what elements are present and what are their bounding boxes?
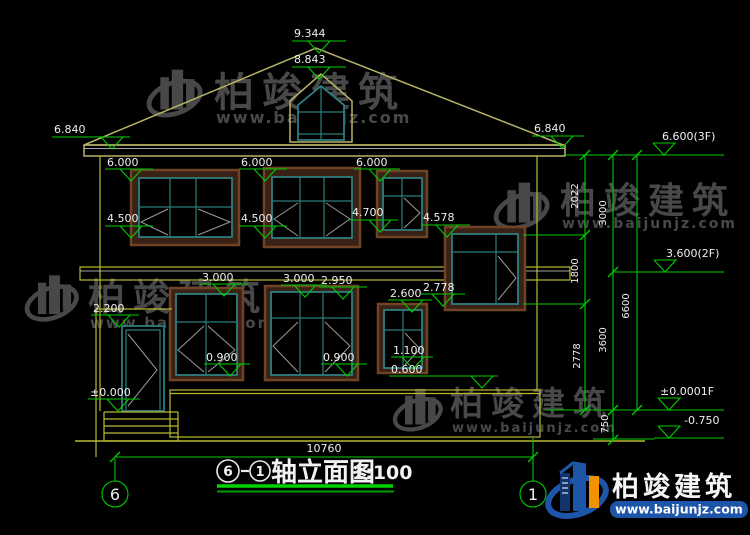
- vdim-6600: 6600: [621, 293, 632, 318]
- elev-3600-2f: 3.600(2F): [654, 247, 724, 272]
- elev-label: ±0.0001F: [660, 385, 714, 398]
- elev-label: 2.600: [390, 287, 422, 300]
- elev-label: 8.843: [294, 53, 326, 66]
- elev-label: 4.500: [241, 212, 273, 225]
- watermark-url: www.baijunjz.com: [452, 421, 617, 436]
- elev-label: 4.700: [352, 206, 384, 219]
- elevation-drawing: 柏竣建筑 www.baijunjz.com 柏竣建筑 www.baijunjz.…: [0, 0, 750, 535]
- window-2f-2: [264, 168, 360, 247]
- elev-label: ±0.000: [90, 386, 131, 399]
- window-1f-2: [265, 286, 358, 380]
- cad-elevation-screenshot: 柏竣建筑 www.baijunjz.com 柏竣建筑 www.baijunjz.…: [0, 0, 750, 535]
- vdim-2022: 2022: [570, 183, 581, 208]
- watermark-top: 柏竣建筑 www.baijunjz.com: [144, 70, 411, 127]
- elev-label: 0.900: [323, 351, 355, 364]
- vdim-1800: 1800: [570, 258, 581, 283]
- elev-6840-right: 6.840: [532, 122, 584, 148]
- title-scale: 1:100: [352, 462, 412, 484]
- entry-steps: [104, 412, 178, 441]
- elev-label: 0.900: [206, 351, 238, 364]
- brand-logo: 柏竣建筑 www.baijunjz.com: [543, 463, 748, 523]
- elev-label: 6.000: [356, 156, 388, 169]
- elev-label: 2.200: [93, 302, 125, 315]
- elev-label: 6.000: [241, 156, 273, 169]
- elev-0000-1f: ±0.0001F: [654, 385, 724, 410]
- elev-label: 3.000: [283, 272, 315, 285]
- overall-width-dim: 10760: [307, 442, 342, 455]
- elev-label: 6.840: [54, 123, 86, 136]
- elev-label: 2.778: [423, 281, 455, 294]
- vdim-750: 750: [600, 414, 611, 433]
- elev-label: 1.100: [393, 344, 425, 357]
- eave-band: [84, 145, 565, 156]
- watermark-logo-icon: [391, 389, 445, 435]
- vdim-2778: 2778: [572, 343, 583, 368]
- axis-number-right: 1: [528, 485, 538, 504]
- elev-label: 3.600(2F): [666, 247, 719, 260]
- elev-label: 6.840: [534, 122, 566, 135]
- window-stair: [445, 227, 525, 310]
- watermark-right: 柏竣建筑 www.baijunjz.com: [491, 181, 737, 234]
- right-level-markers: 6.600(3F) 3.600(2F) ±0.0001F -0.750: [648, 130, 724, 438]
- elev-label: 0.600: [391, 363, 423, 376]
- elev-label: 4.500: [107, 212, 139, 225]
- title-axis-start: 6: [223, 464, 233, 480]
- drawing-title: 6 1 轴立面图 1:100: [217, 457, 412, 492]
- elev-label: 2.950: [321, 274, 353, 287]
- elev-label: 4.578: [423, 211, 455, 224]
- vdim-3600: 3600: [598, 327, 609, 352]
- brand-logo-url: www.baijunjz.com: [615, 502, 743, 517]
- axis-number-left: 6: [110, 485, 120, 504]
- elev-label: 9.344: [294, 27, 326, 40]
- elev-label: -0.750: [684, 414, 719, 427]
- elev-label: 6.000: [107, 156, 139, 169]
- title-axis-end: 1: [255, 465, 264, 480]
- watermark-logo-icon: [144, 70, 204, 122]
- window-1f-1: [170, 288, 243, 380]
- watermark-logo-icon: [23, 275, 81, 325]
- window-2f-1: [131, 170, 239, 245]
- elev-label: 3.000: [202, 271, 234, 284]
- watermark-url: www.baijunjz.com: [562, 216, 737, 232]
- brand-logo-text: 柏竣建筑: [612, 471, 736, 503]
- vdim-3000: 3000: [598, 200, 609, 225]
- brand-logo-icon: [543, 463, 611, 523]
- elev-6600-3f: 6.600(3F): [648, 130, 724, 155]
- elev-neg-0750: -0.750: [654, 414, 724, 438]
- elev-label: 6.600(3F): [662, 130, 715, 143]
